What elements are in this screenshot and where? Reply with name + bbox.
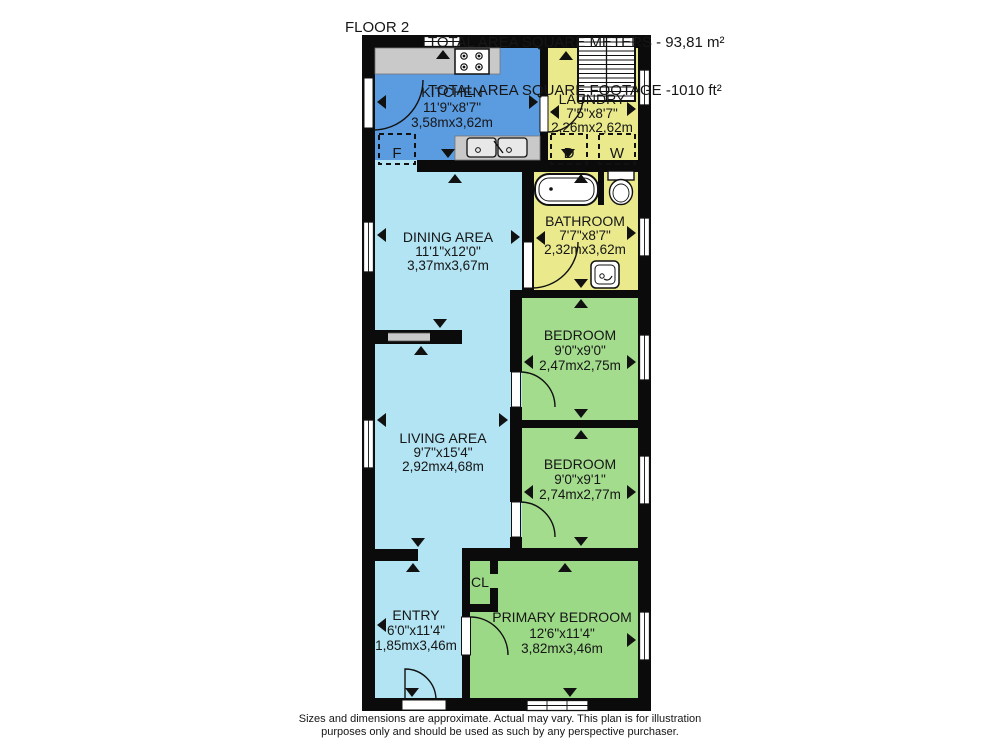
living-dim-metric: 2,92mx4,68m [402,459,484,474]
bathroom-window [640,218,650,256]
living-window [364,420,374,468]
bedroom1-label: BEDROOM [544,327,616,343]
disclaimer-line1: Sizes and dimensions are approximate. Ac… [0,713,1000,726]
total-area-footage: TOTAL AREA SQUARE FOOTAGE -1010 ft² [428,83,724,99]
bedroom2-label: BEDROOM [544,456,616,472]
entry-dim-imperial: 6'0"x11'4" [387,623,445,638]
primary-bedroom-dim-imperial: 12'6"x11'4" [529,626,595,641]
dining-window [364,222,374,272]
primary-bedroom-label: PRIMARY BEDROOM [492,609,632,625]
bathroom-dim-imperial: 7'7"x8'7" [559,228,611,243]
bedroom2-window [640,456,650,504]
total-area-meters: TOTAL AREA SQUARE METERS - 93,81 m² [428,35,724,51]
bathroom-sink [591,261,619,288]
bedroom2-dim-imperial: 9'0"x9'1" [554,472,606,487]
toilet [608,171,634,205]
fridge-label: F [392,145,401,162]
disclaimer: Sizes and dimensions are approximate. Ac… [0,713,1000,738]
primary-bedroom-dim-metric: 3,82mx3,46m [521,641,603,656]
bedroom1-dim-imperial: 9'0"x9'0" [554,343,606,358]
bedroom1-dim-metric: 2,47mx2,75m [539,358,621,373]
disclaimer-line2: purposes only and should be used as such… [0,726,1000,739]
living-dim-imperial: 9'7"x15'4" [413,445,472,460]
floorplan-page: FLOOR 2 TOTAL AREA SQUARE METERS - 93,81… [0,0,1000,741]
bedroom1-window [640,335,650,380]
dining-dim-imperial: 11'1"x12'0" [415,244,481,259]
floor-label: FLOOR 2 [345,19,409,36]
bathroom-label: BATHROOM [545,213,625,229]
pass-through-sill [384,331,434,343]
entry-dim-metric: 1,85mx3,46m [375,638,457,653]
entry-label: ENTRY [392,607,440,623]
living-label: LIVING AREA [399,430,487,446]
washer-label: W [610,145,625,162]
closet-wall [490,561,498,574]
closet-label: CL [471,574,489,590]
dining-dim-metric: 3,37mx3,67m [407,258,489,273]
living-entry-partial-wall [362,549,418,561]
primary-bedroom-side-window [640,612,650,660]
bathtub [535,174,598,205]
bathroom-dim-metric: 2,32mx3,62m [544,242,626,257]
dining-label: DINING AREA [403,229,494,245]
primary-bedroom-window [527,701,588,711]
total-area-block: TOTAL AREA SQUARE METERS - 93,81 m² TOTA… [428,3,724,131]
bedroom2-dim-metric: 2,74mx2,77m [539,487,621,502]
dryer-label: D [564,145,575,162]
